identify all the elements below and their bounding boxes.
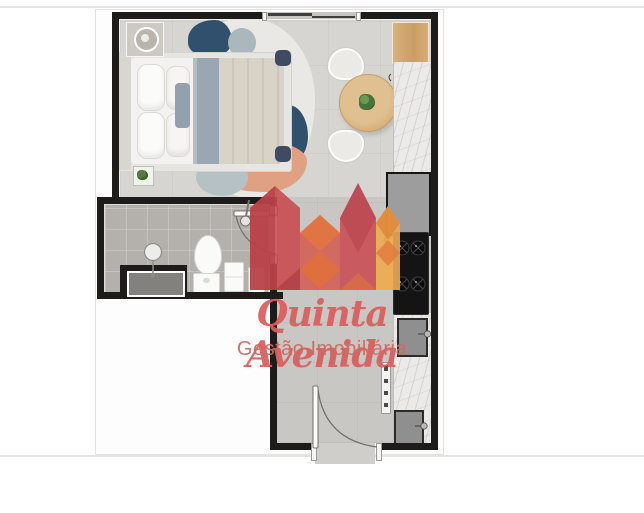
refrigerator [386, 172, 431, 236]
bedroom-left-wall [112, 12, 119, 202]
bathroom-bottom-wall [97, 292, 283, 299]
cooktop [393, 232, 429, 315]
window-jamb [356, 12, 361, 21]
top-wall-left [118, 12, 265, 19]
bath-niche [127, 271, 185, 297]
kitchen-counter-upper [393, 62, 432, 184]
hall-left-wall-lower [270, 255, 277, 450]
floorplan [97, 12, 438, 450]
foot-cushion [275, 146, 291, 162]
accent-pillow [175, 83, 190, 128]
right-wall [431, 12, 438, 450]
toilet-tank [193, 273, 220, 293]
window-jamb [262, 12, 267, 21]
entry-threshold [315, 443, 375, 464]
toilet-bowl [194, 235, 222, 275]
bed-throw-blanket [193, 58, 219, 164]
bed-headboard [119, 52, 131, 170]
bathroom-left-wall [97, 197, 104, 299]
foot-cushion [275, 50, 291, 66]
counter-edge-rack [381, 362, 391, 414]
window-pane [268, 13, 312, 16]
hall-left-wall-upper [270, 197, 277, 215]
pillow [137, 64, 165, 111]
bath-cabinet [224, 262, 244, 292]
window-pane [312, 16, 355, 19]
kitchen-sink-upper [397, 318, 428, 357]
entry-door-jamb [376, 443, 382, 461]
lamp-shade-top [141, 34, 149, 42]
listing-image: Quinta Avenida Gestão Imobiliária [0, 0, 644, 513]
toilet-flush-button [203, 278, 210, 283]
top-divider-line [0, 6, 644, 8]
bottom-wall-left [270, 443, 315, 450]
plant-icon [137, 170, 148, 180]
kitchen-sink-lower [394, 410, 424, 446]
bed-duvet [219, 58, 284, 164]
bathroom-top-wall [100, 197, 277, 204]
bottom-wall-right [378, 443, 438, 450]
kitchen-wood-cabinet [392, 22, 429, 64]
table-plant-icon [359, 94, 375, 110]
top-wall-right [358, 12, 438, 19]
bath-hamper-box [248, 267, 265, 293]
pillow [137, 112, 165, 159]
entry-door-jamb [311, 443, 317, 461]
